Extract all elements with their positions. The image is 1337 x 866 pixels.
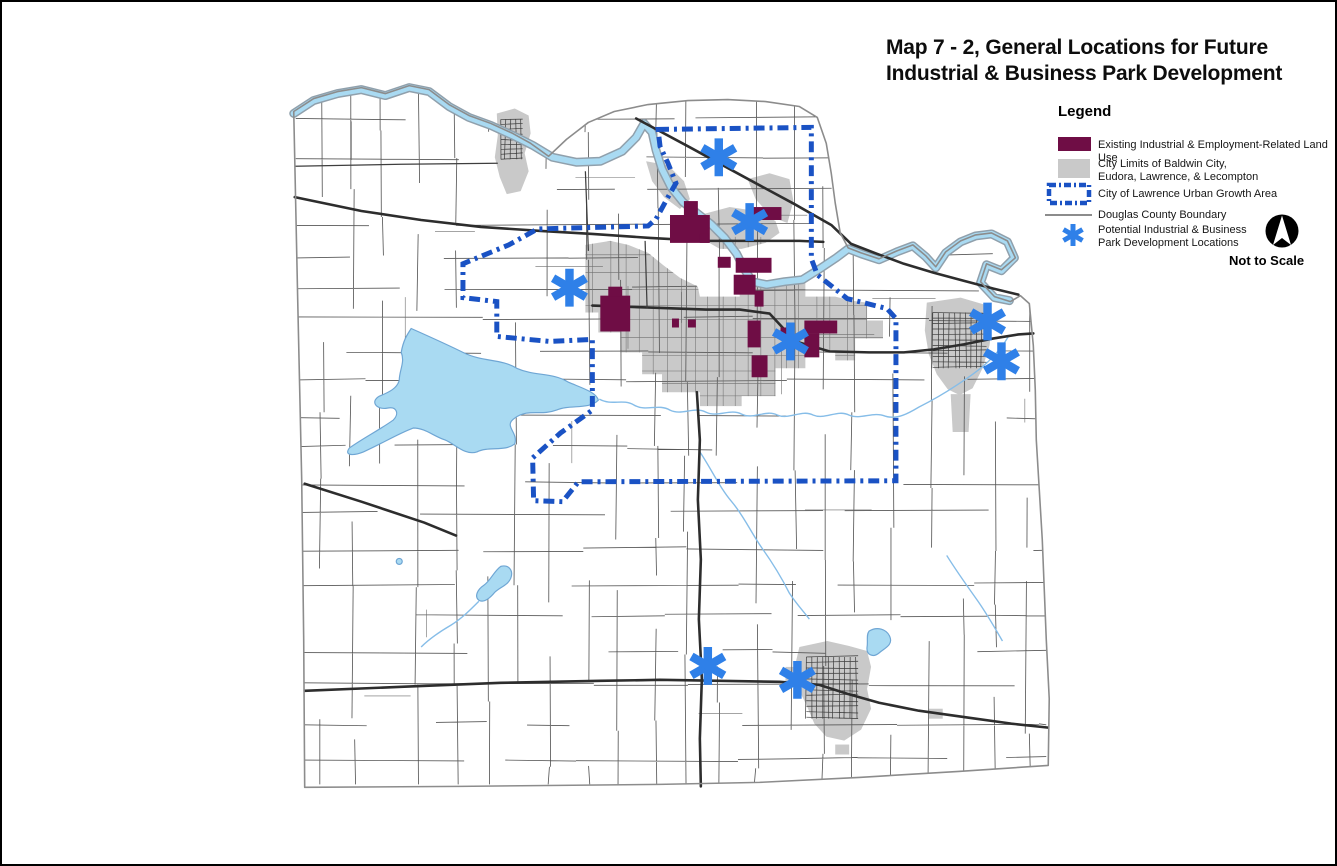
baldwin-south-parcel	[835, 745, 849, 755]
small-pond	[396, 558, 402, 564]
eudora-south-strip	[951, 394, 971, 432]
industrial-area	[804, 333, 819, 357]
page-title: Map 7 - 2, General Locations for Future …	[886, 35, 1326, 86]
industrial-area	[684, 201, 698, 216]
industrial-area	[804, 321, 837, 334]
industrial-area	[734, 275, 756, 295]
title-line-2: Industrial & Business Park Development	[886, 61, 1326, 87]
industrial-area	[755, 291, 764, 307]
industrial-area	[608, 287, 622, 297]
industrial-area	[748, 321, 761, 348]
east-lawrence-parcel	[837, 328, 853, 338]
title-line-1: Map 7 - 2, General Locations for Future	[886, 35, 1326, 61]
map-canvas	[2, 2, 1335, 864]
industrial-area	[752, 355, 768, 377]
industrial-area	[672, 319, 679, 328]
industrial-area	[700, 234, 709, 243]
map-page: Map 7 - 2, General Locations for Future …	[0, 0, 1337, 866]
industrial-area	[718, 257, 731, 268]
industrial-area	[688, 320, 696, 328]
industrial-area	[736, 258, 772, 273]
industrial-area	[600, 296, 630, 332]
